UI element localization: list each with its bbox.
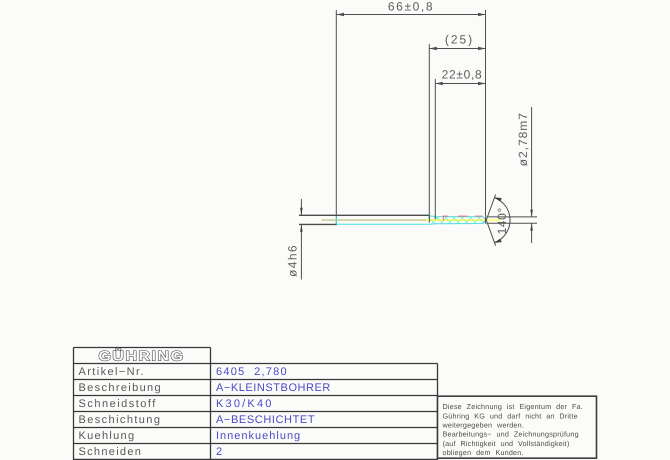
svg-text:Schneidstoff: Schneidstoff (79, 398, 157, 410)
svg-text:Artikel−Nr.: Artikel−Nr. (79, 366, 145, 378)
svg-text:140°: 140° (495, 207, 509, 234)
svg-text:Schneiden: Schneiden (79, 446, 143, 458)
svg-text:6405 2,780: 6405 2,780 (216, 366, 288, 378)
svg-text:22±0,8: 22±0,8 (442, 67, 483, 81)
svg-text:K30/K40: K30/K40 (216, 398, 274, 410)
svg-text:ø4h6: ø4h6 (286, 244, 300, 277)
svg-text:weitergegeben werden.: weitergegeben werden. (442, 421, 525, 430)
svg-text:A−KLEINSTBOHRER: A−KLEINSTBOHRER (216, 382, 331, 394)
svg-text:(auf Richtigkeit und Vollständ: (auf Richtigkeit und Vollständigkeit) (443, 439, 570, 448)
svg-text:Bearbeitungs− und Zeichnungspr: Bearbeitungs− und Zeichnungsprüfung (443, 430, 579, 439)
svg-text:Beschichtung: Beschichtung (79, 414, 162, 426)
svg-text:ø2,78m7: ø2,78m7 (516, 112, 530, 166)
svg-text:Kuehlung: Kuehlung (79, 430, 136, 442)
svg-text:Gühring KG und darf nicht an D: Gühring KG und darf nicht an Dritte (443, 411, 578, 420)
svg-text:Diese Zeichnung ist Eigentum d: Diese Zeichnung ist Eigentum der Fa. (443, 402, 583, 411)
svg-text:GÜHRING: GÜHRING (99, 349, 185, 364)
svg-text:(25): (25) (445, 33, 474, 47)
svg-text:A−BESCHICHTET: A−BESCHICHTET (216, 414, 315, 426)
svg-text:obliegen dem Kunden.: obliegen dem Kunden. (443, 448, 524, 457)
svg-text:Beschreibung: Beschreibung (79, 382, 162, 394)
svg-text:66±0,8: 66±0,8 (388, 0, 434, 13)
svg-text:Innenkuehlung: Innenkuehlung (216, 430, 301, 442)
svg-text:2: 2 (216, 446, 223, 458)
